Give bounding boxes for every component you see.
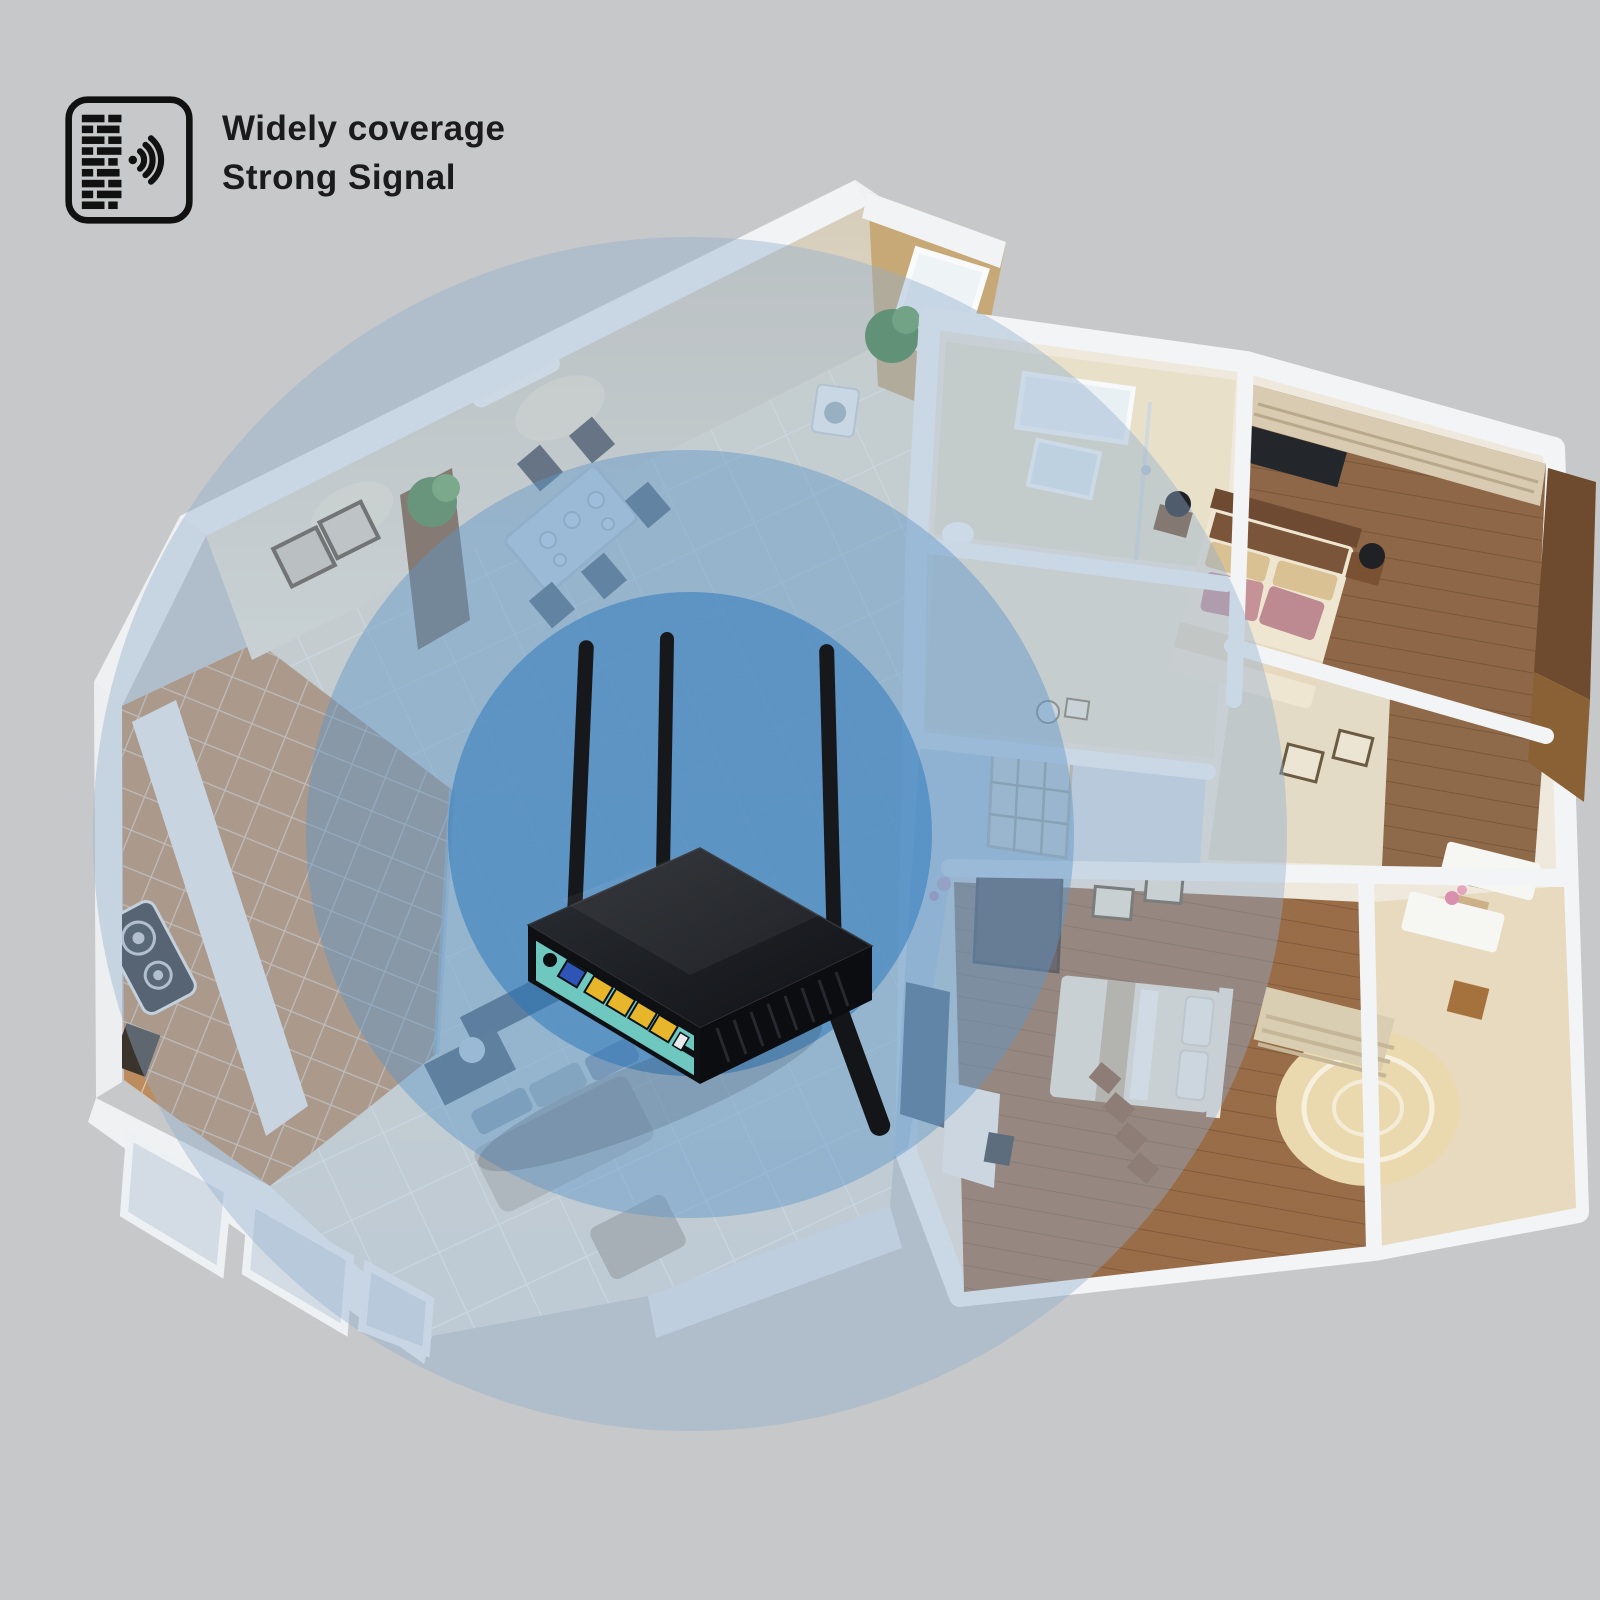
signal-waves <box>129 138 162 181</box>
badge-text: Widely coverage Strong Signal <box>222 94 505 202</box>
badge-line-2: Strong Signal <box>222 153 505 202</box>
badge-line-1: Widely coverage <box>222 104 505 153</box>
flowers <box>1445 891 1459 905</box>
brick-wall <box>82 115 122 209</box>
wall-signal-icon <box>62 94 196 226</box>
power-jack <box>543 953 557 967</box>
bedside-lamp <box>1359 543 1385 569</box>
feature-badge: Widely coverage Strong Signal <box>62 94 505 226</box>
floorplan-illustration <box>0 0 1600 1600</box>
scene: Widely coverage Strong Signal <box>0 0 1600 1600</box>
wall-picture <box>1333 730 1373 765</box>
wall-picture <box>1281 744 1323 782</box>
